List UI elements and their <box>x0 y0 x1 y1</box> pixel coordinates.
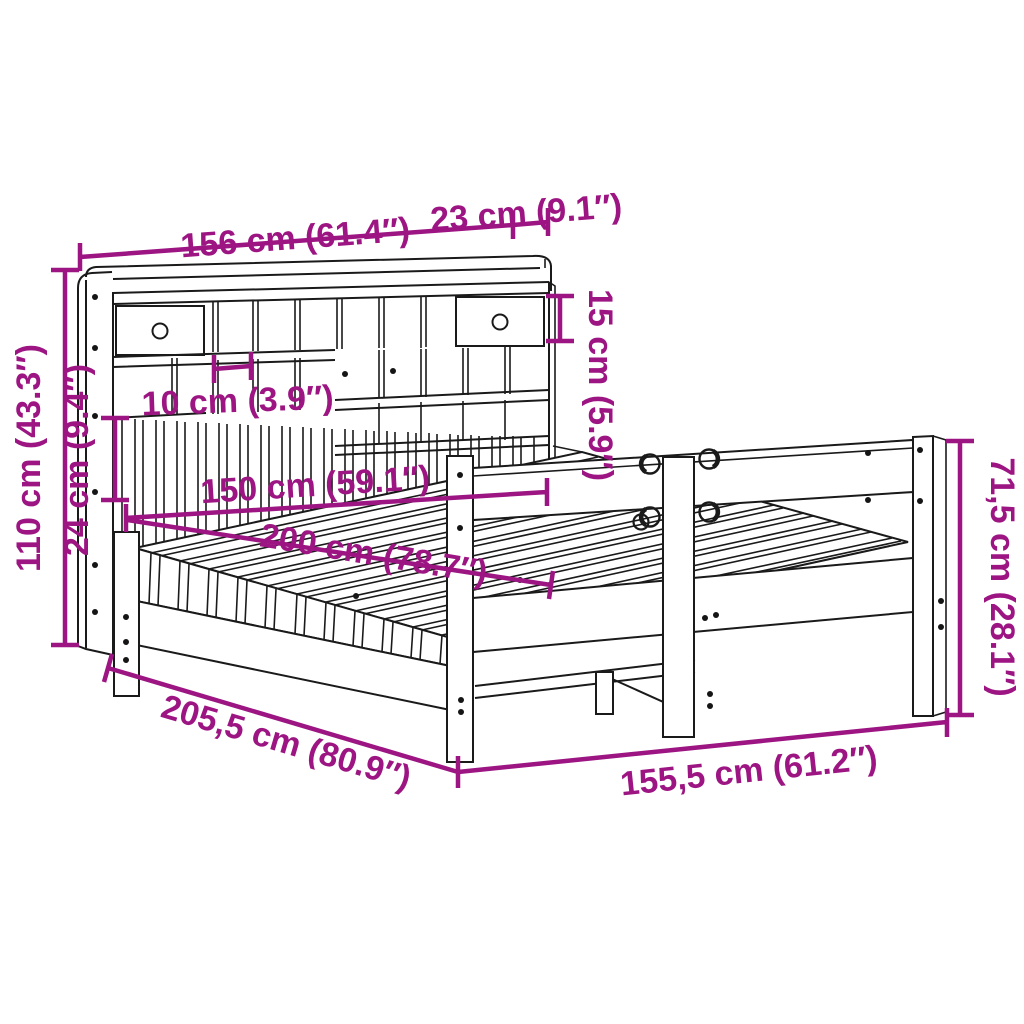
footboard-center-stile <box>663 457 694 737</box>
dimension-diagram: 156 cm (61.4″) 23 cm (9.1″) 15 cm (5.9″)… <box>0 0 1024 1024</box>
label-shelf-depth: 24 cm (9.4″) <box>58 364 96 556</box>
label-headboard-depth: 23 cm (9.1″) <box>429 187 623 239</box>
label-headboard-height: 110 cm (43.3″) <box>10 344 48 572</box>
label-total-length: 205,5 cm (80.9″) <box>157 688 415 798</box>
footboard-near-stile <box>447 456 473 762</box>
dim-line-shelf-depth <box>101 418 129 500</box>
diagram-canvas: 156 cm (61.4″) 23 cm (9.1″) 15 cm (5.9″)… <box>0 0 1024 1024</box>
label-compartment-width: 10 cm (3.9″) <box>141 379 334 424</box>
center-support-leg <box>596 672 613 714</box>
dim-line-shelf-clearance <box>546 296 574 341</box>
dim-line-compartment-width <box>214 352 251 383</box>
label-headboard-width: 156 cm (61.4″) <box>179 211 411 266</box>
dim-line-footboard-height <box>946 441 974 715</box>
label-frame-width: 155,5 cm (61.2″) <box>618 739 879 804</box>
footboard-far-stile <box>913 436 933 716</box>
label-footboard-height: 71,5 cm (28.1″) <box>983 457 1021 696</box>
label-shelf-clearance: 15 cm (5.9″) <box>581 289 619 481</box>
